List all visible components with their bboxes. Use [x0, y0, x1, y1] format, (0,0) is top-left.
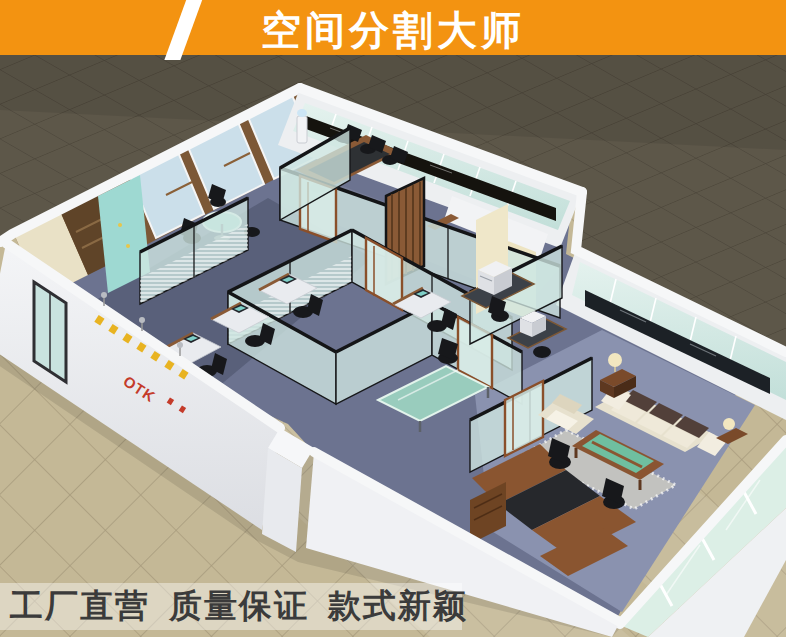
top-banner: 空间分割大师: [0, 0, 786, 55]
office-render-stage: OTK: [0, 0, 786, 637]
water-dispenser: [297, 109, 307, 143]
banner-title: 空间分割大师: [0, 3, 786, 58]
slogan-bar: 工厂直营 质量保证 款式新颖: [0, 583, 462, 630]
slogan-factory: 工厂直营: [10, 584, 150, 629]
slogan-quality: 质量保证: [169, 584, 309, 629]
promo-image: { "banner": { "title": "空间分割大师", "backgr…: [0, 0, 786, 637]
slogan-style: 款式新颖: [328, 584, 468, 629]
office-render: OTK: [0, 0, 786, 637]
